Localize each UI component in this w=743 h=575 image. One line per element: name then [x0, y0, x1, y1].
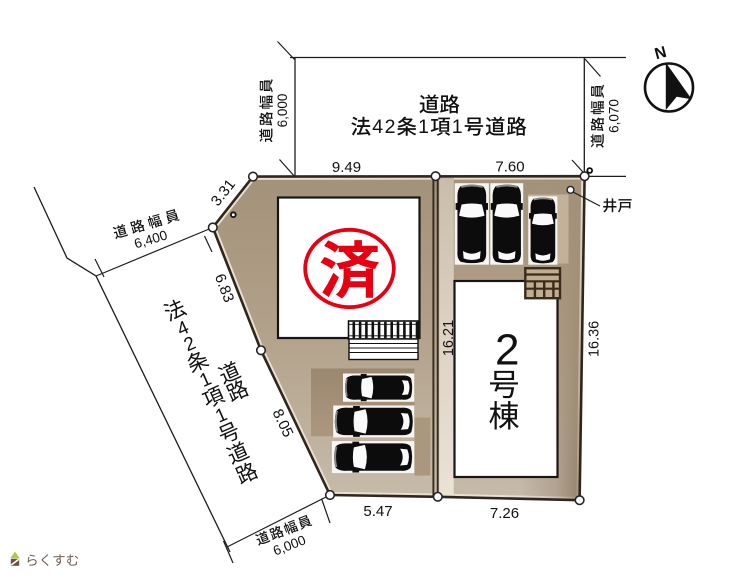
- svg-text:7.60: 7.60: [495, 158, 524, 175]
- svg-text:4: 4: [372, 116, 383, 138]
- svg-text:5.47: 5.47: [363, 503, 392, 520]
- svg-text:2: 2: [495, 325, 519, 374]
- svg-text:6,070: 6,070: [606, 99, 621, 133]
- svg-text:16.36: 16.36: [587, 321, 603, 357]
- svg-text:2: 2: [385, 116, 396, 138]
- svg-text:16.21: 16.21: [441, 320, 457, 356]
- svg-text:7.26: 7.26: [490, 505, 519, 522]
- svg-text:1: 1: [418, 116, 429, 138]
- svg-text:6,000: 6,000: [275, 94, 290, 128]
- svg-text:1: 1: [452, 116, 463, 138]
- svg-text:9.49: 9.49: [332, 159, 361, 176]
